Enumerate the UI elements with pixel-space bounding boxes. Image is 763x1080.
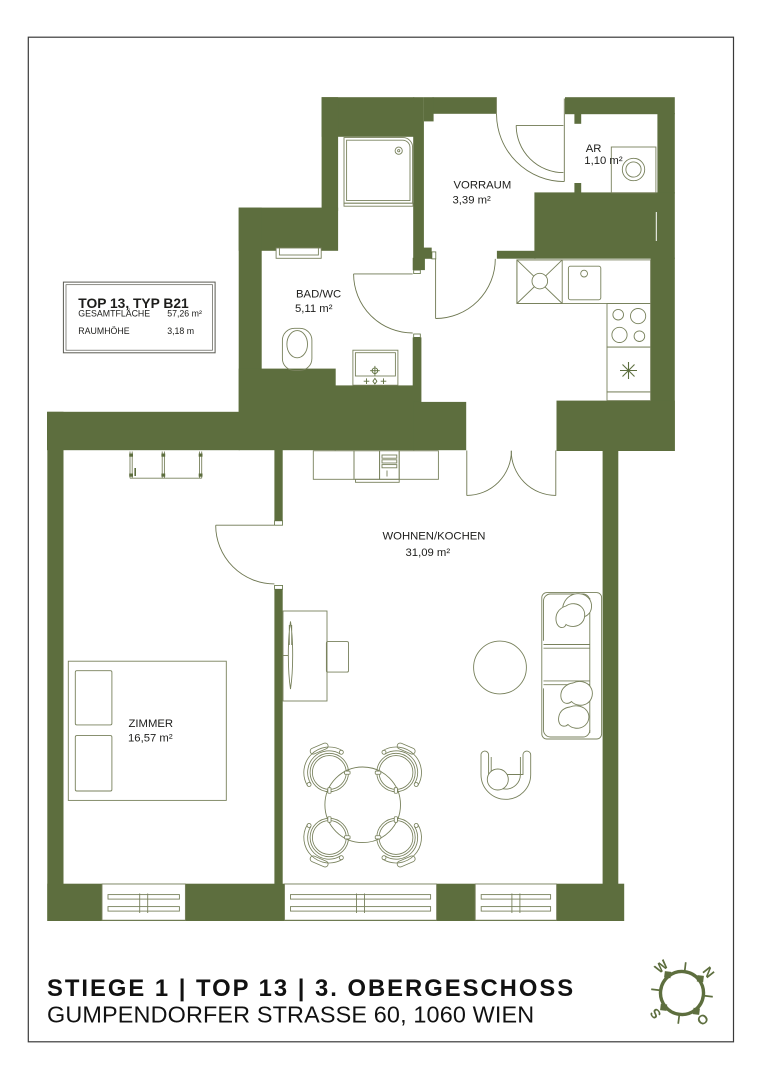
svg-text:31,09 m²: 31,09 m² — [406, 547, 451, 559]
svg-text:GESAMTFLÄCHE: GESAMTFLÄCHE — [78, 309, 150, 319]
svg-text:1,10 m²: 1,10 m² — [584, 155, 623, 167]
svg-text:WOHNEN/KOCHEN: WOHNEN/KOCHEN — [383, 531, 486, 543]
svg-text:5,11 m²: 5,11 m² — [295, 303, 333, 315]
svg-text:STIEGE 1 | TOP 13 | 3. OBERGES: STIEGE 1 | TOP 13 | 3. OBERGESCHOSS — [47, 975, 575, 1002]
svg-text:57,26 m²: 57,26 m² — [167, 309, 202, 319]
svg-text:BAD/WC: BAD/WC — [296, 289, 341, 301]
svg-text:VORRAUM: VORRAUM — [454, 180, 512, 192]
svg-text:GUMPENDORFER STRASSE 60, 1060: GUMPENDORFER STRASSE 60, 1060 WIEN — [47, 1002, 534, 1028]
svg-text:3,18 m: 3,18 m — [167, 326, 194, 336]
svg-text:3,39 m²: 3,39 m² — [453, 195, 492, 207]
svg-text:ZIMMER: ZIMMER — [129, 718, 174, 730]
svg-text:16,57 m²: 16,57 m² — [128, 733, 173, 745]
svg-text:RAUMHÖHE: RAUMHÖHE — [78, 326, 129, 336]
svg-text:AR: AR — [586, 143, 602, 155]
